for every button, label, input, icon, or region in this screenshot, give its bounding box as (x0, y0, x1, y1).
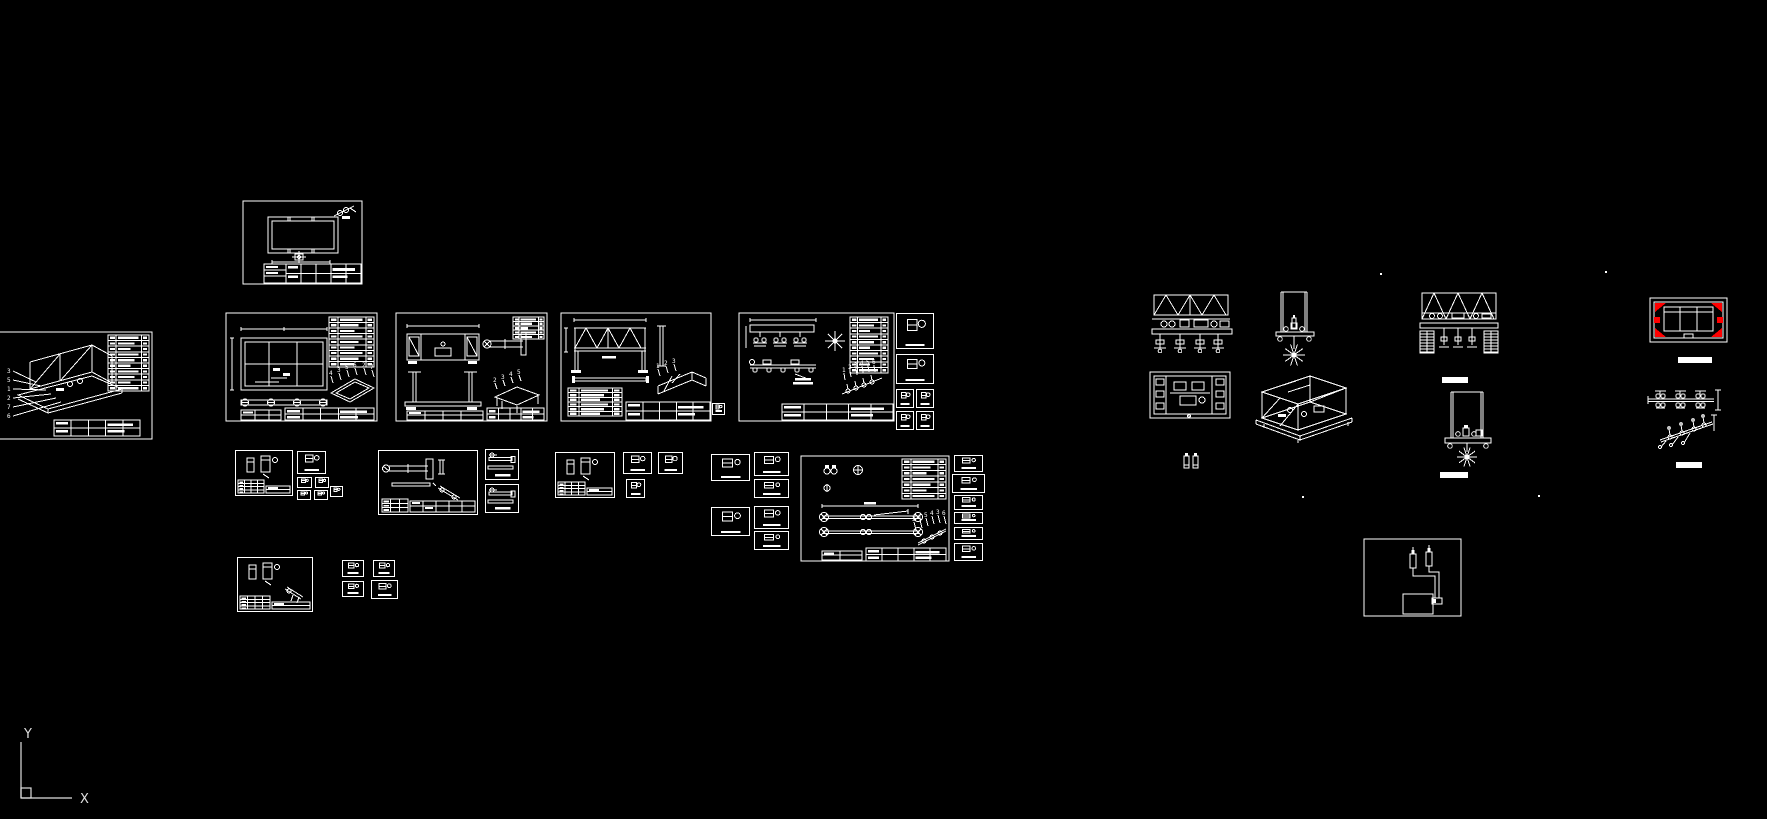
detail-box[interactable] (371, 580, 398, 599)
shaft-parts-sheet[interactable] (378, 450, 478, 515)
ucs-linework (21, 742, 72, 798)
detail-box[interactable] (954, 512, 983, 524)
drawing-linework (1650, 298, 1727, 342)
svg-text:5: 5 (345, 364, 349, 371)
detail-box[interactable] (314, 490, 328, 500)
detail-box[interactable] (711, 507, 750, 536)
truss-girder-sheet[interactable]: 123 (560, 312, 712, 422)
detail-box[interactable] (373, 560, 395, 577)
drawing-linework (1440, 472, 1468, 478)
drawing-linework (1445, 392, 1491, 467)
frame-plan-sheet[interactable] (242, 200, 363, 285)
roller-line-sheet[interactable]: 123456 (738, 312, 895, 422)
drawing-linework (1150, 372, 1230, 418)
stray-point (1538, 495, 1540, 497)
machine-side-star-view[interactable] (1276, 292, 1314, 370)
drawing-linework (1276, 292, 1314, 365)
drawing-linework (1420, 293, 1498, 353)
svg-text:4: 4 (860, 360, 864, 367)
detail-box[interactable] (623, 452, 652, 474)
small-parts-sheet[interactable] (555, 452, 615, 498)
detail-box[interactable] (297, 451, 326, 474)
drawing-linework (955, 528, 983, 540)
clamp-frame-plan[interactable] (1650, 298, 1727, 342)
drawing-linework (374, 561, 395, 577)
machine-plan-view[interactable] (1150, 372, 1230, 418)
crawler-elevation[interactable] (1420, 293, 1500, 368)
drawing-linework (755, 532, 789, 550)
detail-box[interactable] (896, 354, 934, 384)
drawing-linework (917, 390, 934, 408)
drawing-linework (1184, 453, 1198, 468)
svg-text:3: 3 (936, 509, 940, 516)
svg-text:6: 6 (7, 413, 11, 420)
drawing-linework (897, 314, 934, 349)
drawing-linework (343, 561, 364, 577)
svg-text:5: 5 (866, 359, 870, 366)
detail-box[interactable] (754, 531, 789, 550)
detail-box[interactable] (711, 454, 750, 481)
svg-text:1: 1 (656, 363, 660, 370)
drawing-linework (243, 201, 362, 284)
svg-text:6: 6 (942, 510, 946, 517)
drawing-linework (897, 390, 914, 408)
svg-text:1: 1 (842, 367, 846, 374)
svg-text:6: 6 (353, 362, 357, 369)
svg-text:1: 1 (918, 514, 922, 521)
svg-text:4: 4 (509, 371, 513, 378)
detail-box[interactable] (315, 477, 329, 488)
model-space-canvas[interactable]: Y X 3512764356272345123123456215436 (0, 0, 1767, 819)
drawing-linework (556, 453, 615, 498)
frame-star-elevation[interactable] (1443, 392, 1493, 468)
detail-box[interactable] (297, 477, 312, 488)
drawing-linework (1659, 415, 1718, 449)
stray-point (1302, 496, 1304, 498)
drawing-linework (486, 485, 519, 513)
detail-box[interactable] (896, 411, 914, 430)
svg-text:5: 5 (517, 369, 521, 376)
svg-text:2: 2 (912, 516, 916, 523)
drawing-linework: 351276 (0, 332, 152, 439)
drawing-linework (298, 478, 312, 488)
svg-text:4: 4 (930, 510, 934, 517)
detail-box[interactable] (342, 560, 364, 577)
detail-box[interactable] (954, 543, 983, 561)
linkage-plan-view[interactable] (1648, 388, 1722, 411)
detail-box[interactable] (330, 486, 343, 497)
drawing-linework (917, 412, 934, 430)
drawing-linework (1678, 357, 1712, 363)
drawing-linework (955, 496, 983, 510)
svg-text:1: 1 (7, 386, 11, 393)
drawing-linework (712, 508, 750, 536)
svg-text:3: 3 (7, 368, 11, 375)
drawing-linework (955, 513, 983, 524)
detail-box[interactable] (916, 411, 934, 430)
detail-box[interactable] (954, 455, 983, 472)
drawing-linework (1648, 390, 1721, 410)
stray-point (1605, 271, 1607, 273)
drawing-linework (1442, 377, 1468, 383)
detail-box[interactable] (658, 452, 683, 474)
drawing-linework (953, 475, 985, 493)
detail-box[interactable] (754, 479, 789, 498)
detail-box[interactable] (297, 490, 311, 500)
ucs-y-label: Y (23, 727, 32, 742)
drawing-linework (379, 451, 478, 515)
drawing-linework (755, 507, 789, 529)
stray-point (1380, 273, 1382, 275)
drawing-linework (1364, 539, 1461, 616)
drawing-linework (236, 451, 293, 496)
bar-detail-box[interactable] (485, 484, 519, 513)
drawing-linework (897, 355, 934, 384)
detail-box[interactable] (896, 389, 914, 408)
drawing-linework (955, 544, 983, 561)
bracket-sheet[interactable] (237, 557, 313, 612)
detail-box[interactable] (754, 452, 789, 476)
drawing-linework: 435627 (226, 313, 377, 421)
drawing-linework (331, 487, 343, 497)
svg-text:2: 2 (664, 360, 668, 367)
ucs-x-label: X (80, 792, 89, 807)
linkage-iso-view[interactable] (1656, 412, 1722, 448)
bench-weldment-sheet[interactable]: 2345 (395, 312, 548, 422)
drawing-linework (712, 455, 750, 481)
drawing-linework (298, 491, 311, 500)
caption-bar[interactable] (1442, 377, 1468, 383)
drawing-linework (713, 404, 725, 415)
svg-text:6: 6 (872, 359, 876, 366)
axle-assembly-sheet[interactable]: 215436 (800, 455, 950, 562)
small-parts-sheet[interactable] (235, 450, 293, 496)
drawing-linework: 2345 (396, 313, 547, 421)
svg-text:3: 3 (337, 367, 341, 374)
svg-text:7: 7 (370, 364, 374, 371)
drawing-linework (659, 453, 683, 474)
drawing-linework (486, 450, 519, 480)
svg-text:2: 2 (362, 362, 366, 369)
svg-text:3: 3 (501, 374, 505, 381)
drawing-linework: 123456 (739, 313, 894, 421)
drawing-linework (897, 412, 914, 430)
caption-bar[interactable] (1678, 357, 1712, 363)
detail-box[interactable] (896, 313, 934, 349)
pneumatic-schematic-sheet[interactable] (1363, 538, 1462, 617)
drawing-linework (627, 480, 645, 498)
machine-front-elevation[interactable] (1152, 293, 1240, 373)
svg-text:7: 7 (7, 404, 11, 411)
drawing-linework (238, 558, 313, 612)
detail-box[interactable] (626, 479, 645, 498)
svg-text:2: 2 (493, 377, 497, 384)
svg-text:5: 5 (7, 377, 11, 384)
svg-text:2: 2 (7, 395, 11, 402)
frame-detail-sheet[interactable]: 435627 (225, 312, 378, 422)
drawing-linework (316, 478, 329, 488)
caption-bar[interactable] (1676, 462, 1702, 468)
machine-iso-view[interactable] (1248, 368, 1352, 446)
svg-text:3: 3 (672, 358, 676, 365)
drawing-linework: 215436 (801, 456, 949, 561)
gas-cylinders[interactable] (1183, 452, 1199, 470)
detail-box[interactable] (342, 581, 364, 597)
drawing-linework (955, 456, 983, 472)
drawing-linework (624, 453, 652, 474)
drawing-linework (1676, 462, 1702, 468)
drawing-linework (1152, 295, 1232, 353)
svg-text:2: 2 (848, 364, 852, 371)
drawing-linework (755, 480, 789, 498)
drawing-linework (1256, 376, 1352, 443)
drawing-linework (372, 581, 398, 599)
drawing-linework (755, 453, 789, 476)
svg-text:4: 4 (329, 370, 333, 377)
svg-text:3: 3 (854, 362, 858, 369)
svg-text:5: 5 (924, 512, 928, 519)
detail-box[interactable] (712, 403, 725, 415)
drawing-linework: 123 (561, 313, 711, 421)
detail-box[interactable] (954, 527, 983, 540)
detail-box[interactable] (952, 474, 985, 493)
detail-box[interactable] (754, 506, 789, 529)
caption-bar[interactable] (1440, 472, 1468, 478)
drawing-linework (315, 491, 328, 500)
assembly-iso-sheet[interactable]: 351276 (0, 332, 152, 439)
detail-box[interactable] (916, 389, 934, 408)
bar-detail-box[interactable] (485, 449, 519, 480)
ucs-icon: Y X (14, 714, 114, 806)
drawing-linework (298, 452, 326, 474)
drawing-linework (343, 582, 364, 597)
detail-box[interactable] (954, 495, 983, 510)
